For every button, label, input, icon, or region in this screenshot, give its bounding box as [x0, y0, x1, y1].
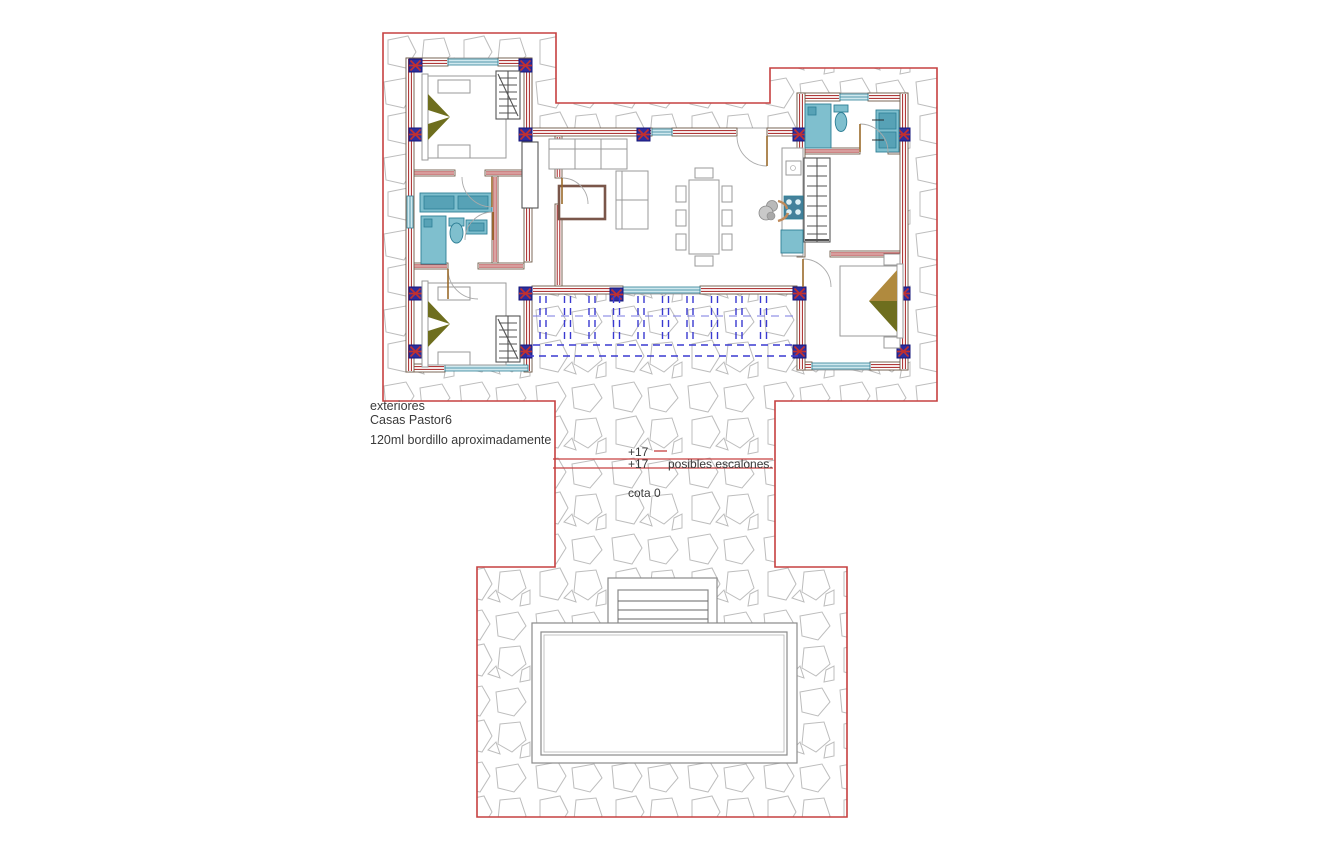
- nightstand: [884, 337, 900, 348]
- label-level-b: +17: [628, 457, 649, 471]
- window: [448, 59, 498, 65]
- wall-body: [672, 128, 737, 136]
- column: [519, 128, 532, 141]
- toilet-tank: [834, 105, 848, 112]
- window: [840, 94, 868, 100]
- bed-headboard: [897, 264, 903, 338]
- sofa-large: [549, 139, 627, 169]
- label-exteriores: exteriores: [370, 399, 425, 413]
- wall-body: [478, 263, 524, 269]
- wall-body: [532, 286, 623, 294]
- window: [652, 129, 672, 135]
- pillow: [438, 145, 470, 158]
- sofa-small: [616, 171, 648, 229]
- label-bordillo: 120ml bordillo aproximadamente: [370, 433, 551, 447]
- shower-drain: [808, 107, 816, 115]
- master-bedroom: [840, 254, 903, 348]
- coffee-table: [559, 186, 605, 219]
- column: [793, 287, 806, 300]
- wall-body: [485, 170, 524, 176]
- sink: [879, 113, 896, 129]
- wall-segment: [532, 286, 623, 294]
- bedroom-top-left: [422, 71, 520, 160]
- burner: [795, 199, 801, 205]
- pillow: [438, 352, 470, 365]
- burner: [795, 209, 801, 215]
- column: [793, 128, 806, 141]
- window: [445, 365, 528, 371]
- wall-body: [797, 148, 860, 154]
- wall-segment: [485, 170, 524, 176]
- wardrobe: [804, 158, 830, 242]
- pillow: [438, 80, 470, 93]
- pool-water-edge: [541, 632, 787, 755]
- column: [409, 345, 422, 358]
- label-project: Casas Pastor6: [370, 413, 452, 427]
- column: [409, 128, 422, 141]
- pillow: [438, 287, 470, 300]
- wardrobe: [496, 316, 520, 362]
- floor-plan-canvas: exteriores Casas Pastor6 120ml bordillo …: [0, 0, 1320, 859]
- wall-segment: [478, 263, 524, 269]
- wall-segment: [797, 148, 860, 154]
- kitchen-appliance: [781, 230, 803, 253]
- wall-body: [700, 286, 797, 294]
- washbasin-bowl: [469, 223, 484, 231]
- wall-segment: [700, 286, 797, 294]
- burner: [786, 199, 792, 205]
- column: [610, 288, 623, 301]
- dressing-room: [804, 158, 830, 242]
- bed-headboard: [422, 281, 428, 367]
- bed-headboard: [422, 74, 428, 160]
- sink: [458, 196, 488, 209]
- dining-table: [689, 180, 719, 254]
- wall-body: [524, 292, 532, 372]
- cabinet: [522, 142, 538, 208]
- window: [812, 363, 870, 369]
- window: [623, 287, 700, 293]
- wall-body: [524, 206, 532, 262]
- column: [637, 128, 650, 141]
- toilet-bowl: [835, 113, 847, 132]
- wall-segment: [524, 292, 532, 372]
- window: [407, 196, 413, 228]
- column: [409, 287, 422, 300]
- wall-segment: [524, 206, 532, 262]
- bedroom-bottom-left: [422, 281, 520, 367]
- label-steps-note: posibles escalones.: [668, 457, 773, 471]
- kitchen-sink: [786, 161, 801, 175]
- floor-plan-drawing: exteriores Casas Pastor6 120ml bordillo …: [0, 0, 1320, 859]
- wall-segment: [532, 128, 652, 136]
- column: [519, 287, 532, 300]
- column: [409, 59, 422, 72]
- sink: [424, 196, 454, 209]
- wall-body: [532, 128, 652, 136]
- shower-drain: [424, 219, 432, 227]
- label-cota0: cota 0: [628, 486, 661, 500]
- wall-segment: [672, 128, 737, 136]
- toilet-bowl: [450, 223, 463, 243]
- pool-steps: [608, 578, 717, 627]
- nightstand: [884, 254, 900, 265]
- wardrobe: [496, 71, 520, 119]
- column: [519, 59, 532, 72]
